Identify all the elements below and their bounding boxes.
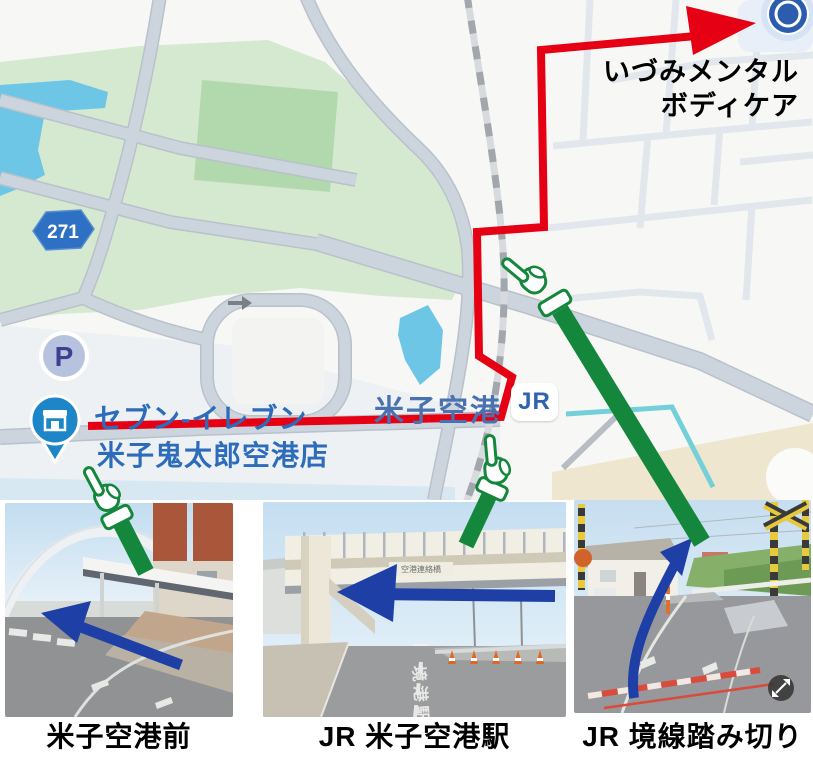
expand-icon[interactable] [768,675,794,701]
destination-name-line1: いづみメンタル [479,55,799,89]
airport-station-label: 米子空港 [374,386,502,430]
delineator-band [666,594,670,600]
house-window [600,570,616,582]
destination-label: いづみメンタル ボディケア [479,55,799,123]
svg-text:271: 271 [47,222,79,243]
utility-pole [521,598,522,648]
brick-building [193,503,233,569]
photo-jr-airport-station: 空港連絡橋 境港駅 [263,502,566,717]
jr-logo: JR [511,383,558,421]
parking-icon: P [39,331,89,381]
destination-name-line2: ボディケア [479,89,799,123]
store-label-line2: 米子鬼太郎空港店 [97,434,329,474]
canopy-column [100,573,104,621]
bridge-sign-text: 空港連絡橋 [401,564,441,574]
photo-caption: 米子空港前 [5,719,233,755]
stair-tower-shade [301,536,309,648]
svg-text:P: P [55,341,74,372]
photo-yonago-airport-front [5,503,233,717]
photo-caption: JR 境線踏み切り [574,719,811,755]
route-guide-page: 271 P いづみメンタル ボディケア 米子空港 JR セブン-イレブン 米子鬼… [0,0,813,760]
crossing-sign [574,549,592,567]
house-door [634,572,646,598]
photo-jr-sakai-line-crossing [574,500,811,713]
photo-caption: JR 米子空港駅 [263,719,566,755]
terminal-building [232,318,324,404]
store-label-line1: セブン-イレブン [94,397,307,437]
crossing-pole-left [578,504,585,590]
